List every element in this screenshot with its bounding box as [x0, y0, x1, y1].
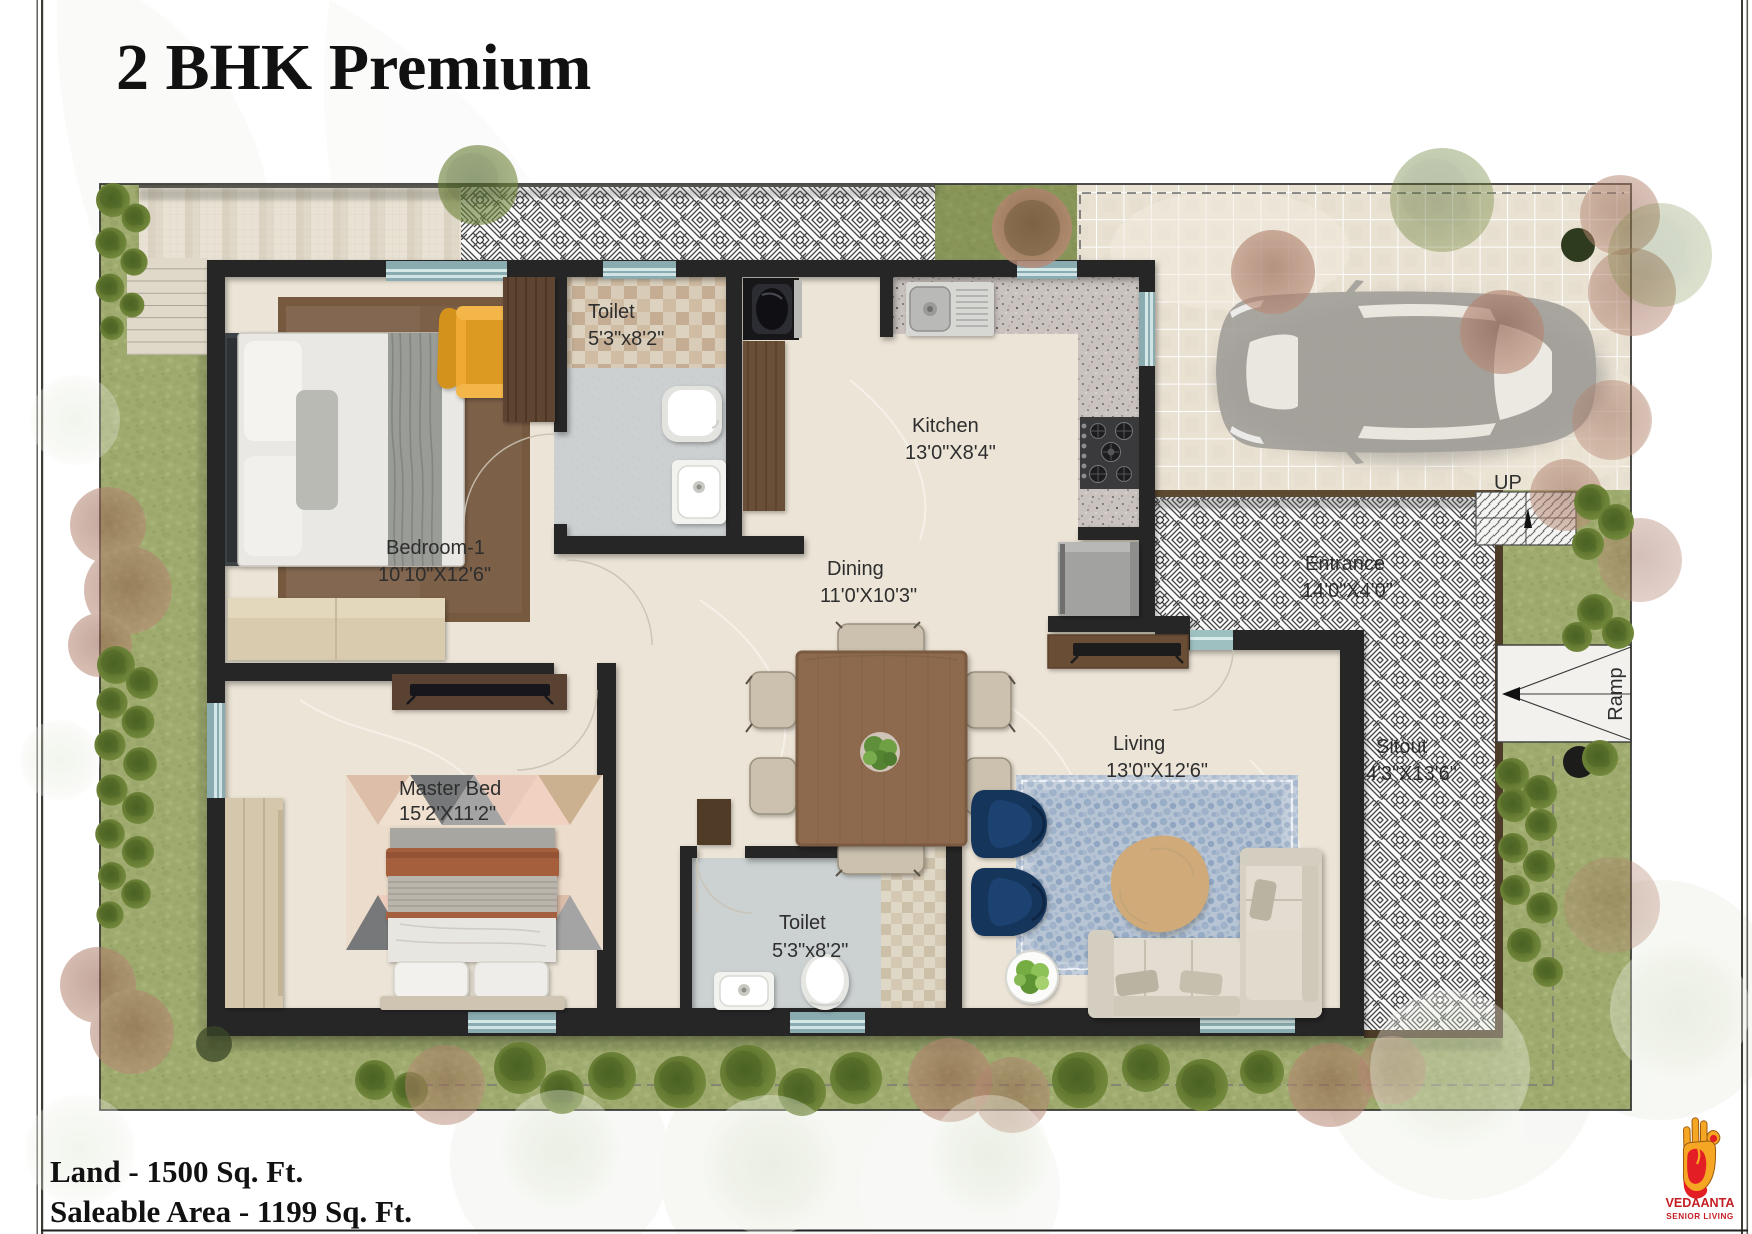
svg-text:5'3"x8'2": 5'3"x8'2" [772, 940, 848, 962]
svg-text:Toilet: Toilet [588, 301, 635, 323]
svg-text:Master Bed: Master Bed [399, 778, 501, 800]
svg-text:13'0"X12'6": 13'0"X12'6" [1106, 760, 1208, 782]
svg-text:Toilet: Toilet [779, 912, 826, 934]
svg-text:11'0'X10'3": 11'0'X10'3" [820, 585, 917, 607]
svg-text:2 BHK Premium: 2 BHK Premium [116, 31, 591, 104]
svg-text:Ramp: Ramp [1605, 667, 1627, 720]
svg-text:15'2'X11'2": 15'2'X11'2" [399, 803, 496, 825]
svg-text:14'0"X4'0": 14'0"X4'0" [1302, 580, 1393, 602]
svg-text:SENIOR LIVING: SENIOR LIVING [1666, 1212, 1733, 1221]
svg-text:13'0"X8'4": 13'0"X8'4" [905, 442, 996, 464]
svg-text:Saleable Area - 1199 Sq. Ft.: Saleable Area - 1199 Sq. Ft. [50, 1194, 412, 1229]
svg-text:Dining: Dining [827, 558, 884, 580]
svg-text:10'10"X12'6": 10'10"X12'6" [378, 564, 491, 586]
svg-text:5'3"x8'2": 5'3"x8'2" [588, 328, 664, 350]
svg-text:Sitout: Sitout [1376, 736, 1428, 758]
svg-text:Land - 1500 Sq. Ft.: Land - 1500 Sq. Ft. [50, 1154, 303, 1189]
svg-text:Living: Living [1113, 733, 1165, 755]
svg-text:Entrance: Entrance [1305, 553, 1385, 575]
svg-text:Kitchen: Kitchen [912, 415, 979, 437]
svg-text:Bedroom-1: Bedroom-1 [386, 537, 485, 559]
svg-text:VEDAANTA: VEDAANTA [1665, 1196, 1734, 1210]
svg-text:4'3"X13'6": 4'3"X13'6" [1366, 763, 1457, 785]
